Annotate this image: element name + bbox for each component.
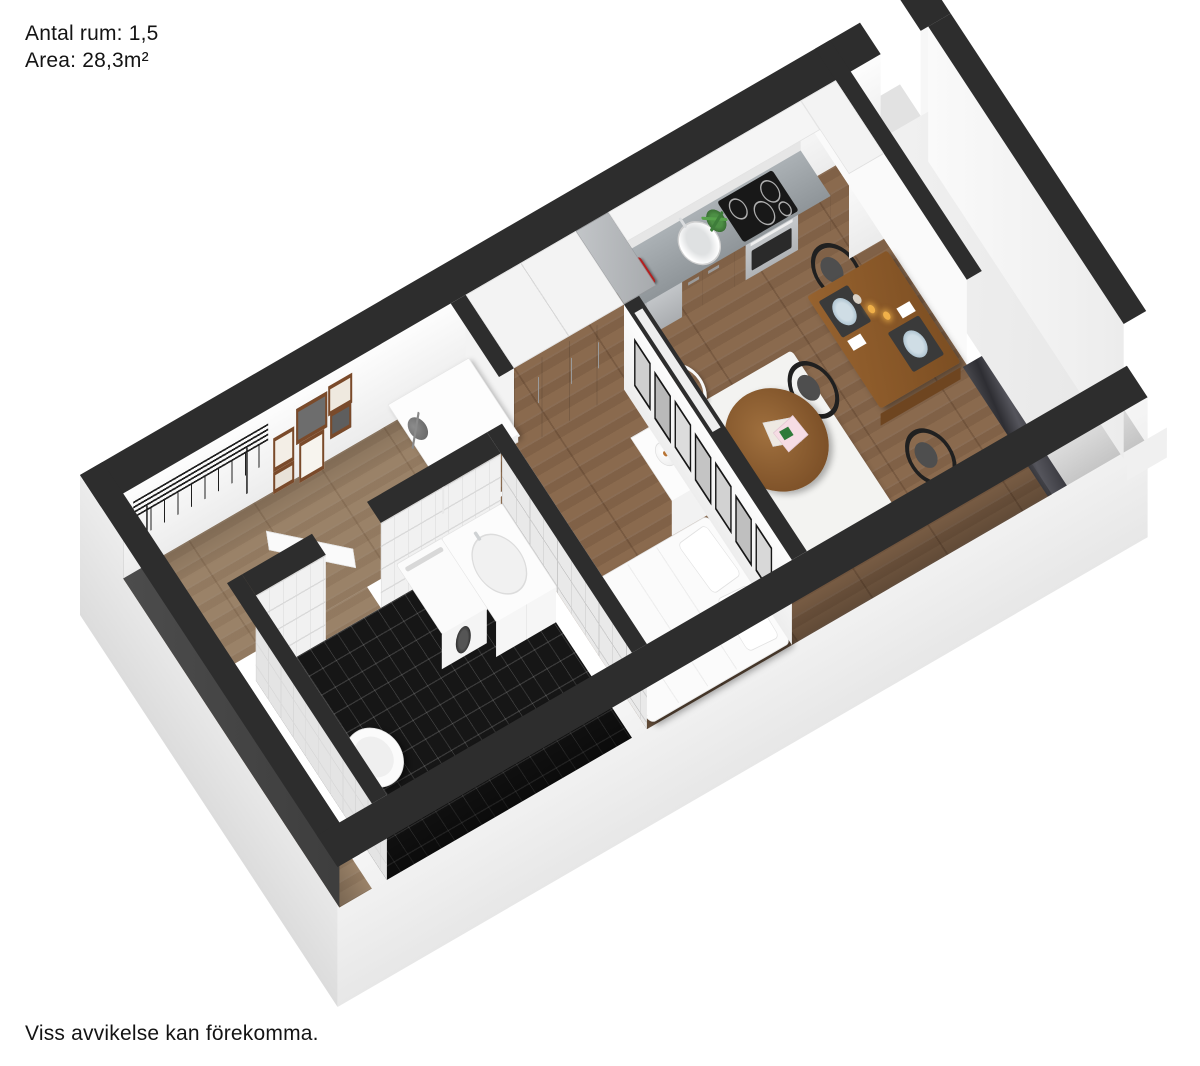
area-label: Area: 28,3m² — [25, 47, 159, 74]
bathroom-north-wall-cap-left — [242, 534, 326, 596]
east-wall-cap — [928, 14, 1146, 325]
floorplan-render: Antal rum: 1,5 Area: 28,3m² Viss avvikel… — [0, 0, 1200, 1066]
bathroom-east-wall-cap — [487, 424, 647, 653]
north-wall-cap — [80, 23, 881, 507]
plan-header: Antal rum: 1,5 Area: 28,3m² — [25, 20, 159, 74]
partition-led-strip — [634, 308, 720, 432]
rooms-count-label: Antal rum: 1,5 — [25, 20, 159, 47]
bathroom-north-wall-cap-right — [367, 432, 501, 523]
disclaimer-label: Viss avvikelse kan förekomma. — [25, 1020, 319, 1047]
